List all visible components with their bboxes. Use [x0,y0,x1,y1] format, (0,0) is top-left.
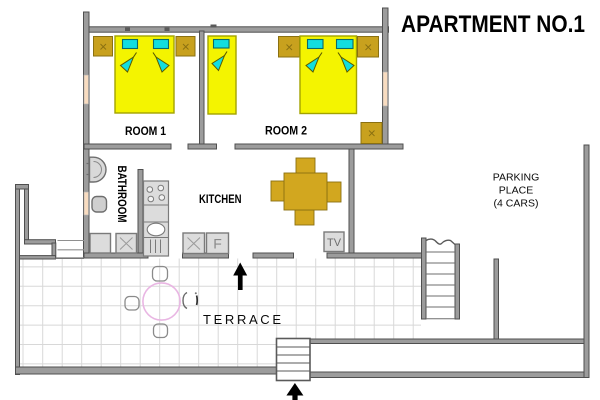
svg-text:ROOM 1: ROOM 1 [125,124,166,138]
svg-text:BATHROOM: BATHROOM [115,166,127,223]
svg-text:TERRACE: TERRACE [203,312,284,327]
svg-text:KITCHEN: KITCHEN [199,194,242,206]
svg-text:PARKING: PARKING [493,172,539,184]
svg-text:TV: TV [327,237,342,249]
svg-text:APARTMENT NO.1: APARTMENT NO.1 [401,11,585,38]
svg-text:ROOM 2: ROOM 2 [265,124,307,138]
svg-text:F: F [213,236,222,252]
svg-text:(4 CARS): (4 CARS) [494,198,539,210]
svg-text:PLACE: PLACE [499,185,533,197]
